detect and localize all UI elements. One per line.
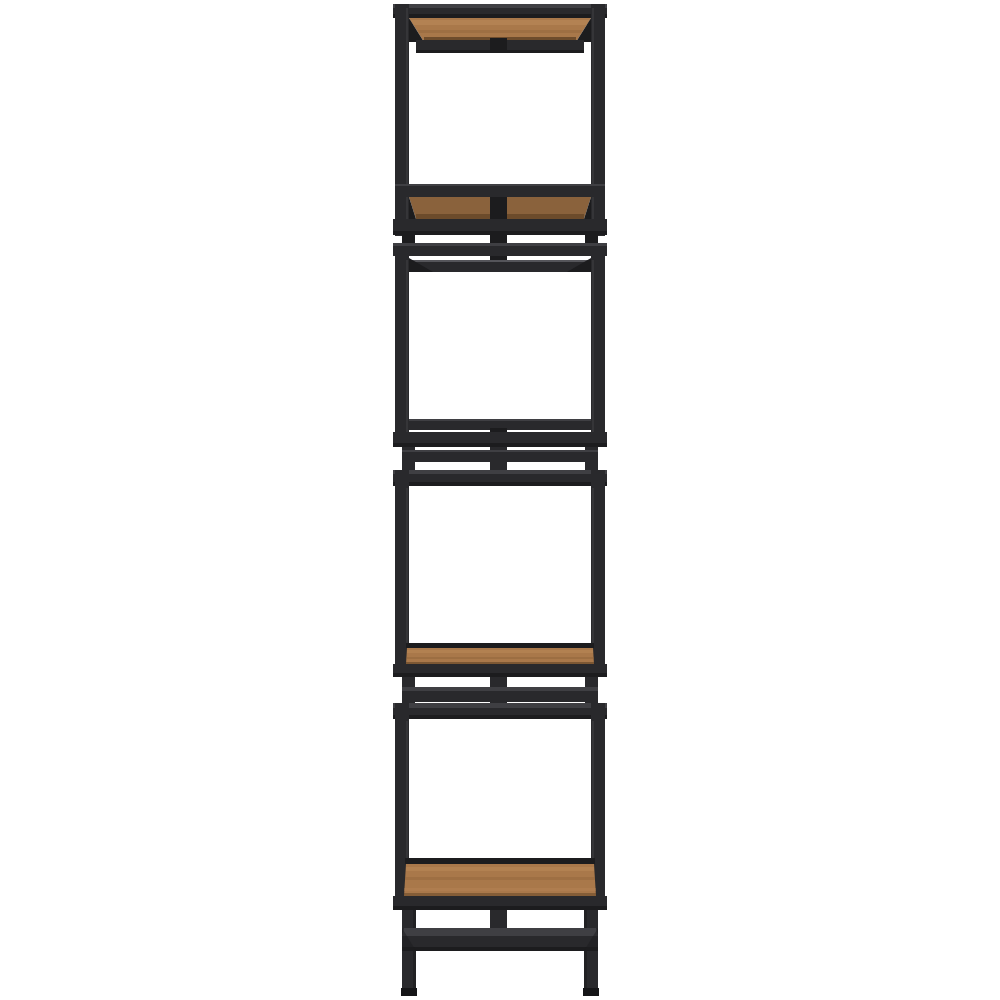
module-1-shelf-front-rail-highlight [395, 184, 605, 186]
etagere-bookshelf [0, 0, 1000, 1000]
module-2-right-post-highlight [592, 260, 594, 444]
connector-1-center-post [490, 235, 507, 244]
right-leg-shade [584, 910, 587, 996]
right-foot [583, 988, 599, 996]
module-1-top-cube [393, 4, 607, 236]
module-4-shelf-back-edge [405, 858, 595, 864]
module-1-shelf-center-divider [490, 197, 507, 219]
module-3-top-bar-top-face [393, 470, 607, 474]
module-4-bottom-bar-shade [393, 906, 607, 910]
connector-2-rail-highlight [402, 450, 598, 452]
connector-1 [402, 235, 598, 244]
product-photo [0, 0, 1000, 1000]
module-4-top-bar-shade [393, 715, 607, 719]
base-crossbar-shade [402, 947, 598, 951]
module-1-left-post-highlight [406, 8, 408, 234]
module-1-bottom-bar-shade [393, 231, 607, 235]
module-3-right-post-highlight [592, 488, 594, 643]
module-4-wood-grain-light-1 [406, 867, 594, 871]
module-2-left-post-highlight [406, 260, 408, 444]
module-2-bottom-back-rail-highlight [409, 419, 591, 421]
module-1-top-bar-highlight [393, 4, 607, 8]
module-4-wood-front-shadow [404, 893, 596, 896]
module-3-top-bar-shade [393, 482, 607, 486]
module-3-shelf-back-edge [406, 643, 594, 648]
module-3-cube [393, 470, 607, 677]
module-3-wood-front-shadow [406, 662, 594, 664]
module-1-top-bar-shade [393, 14, 607, 18]
connector-1-left-post [402, 235, 415, 244]
module-2-open-cube [393, 243, 607, 447]
module-3-wood-grain-dark [407, 657, 594, 659]
connector-3 [402, 677, 598, 703]
module-4-cube [393, 703, 607, 910]
left-leg-shade [413, 910, 416, 996]
top-wood-grain-dark [418, 30, 582, 33]
module-4-top-bar-top-face [393, 703, 607, 708]
module-2-top-back-rail-highlight [409, 260, 591, 262]
module-4-left-post-highlight [406, 721, 408, 858]
module-2-top-bar-highlight [393, 243, 607, 246]
module-1-right-post-highlight [592, 8, 594, 234]
module-3-left-post-highlight [406, 488, 408, 643]
module-3-bottom-bar-shade [393, 673, 607, 677]
module-1-center-bracket [490, 38, 507, 53]
module-2-bottom-bar-shade [393, 443, 607, 447]
base-crossbar-top-face [402, 928, 598, 936]
module-4-right-post-highlight [592, 721, 594, 858]
connector-2 [402, 447, 598, 470]
base-legs [401, 910, 599, 996]
connector-1-right-post [585, 235, 598, 244]
connector-3-rail [402, 691, 598, 702]
module-4-wood-grain-dark [405, 877, 595, 880]
module-4-wood-grain-light-2 [404, 888, 596, 891]
top-wood-grain-light [409, 20, 591, 25]
left-foot [401, 988, 417, 996]
connector-3-rail-top-face [402, 687, 598, 691]
module-3-wood-grain-light [407, 650, 593, 653]
